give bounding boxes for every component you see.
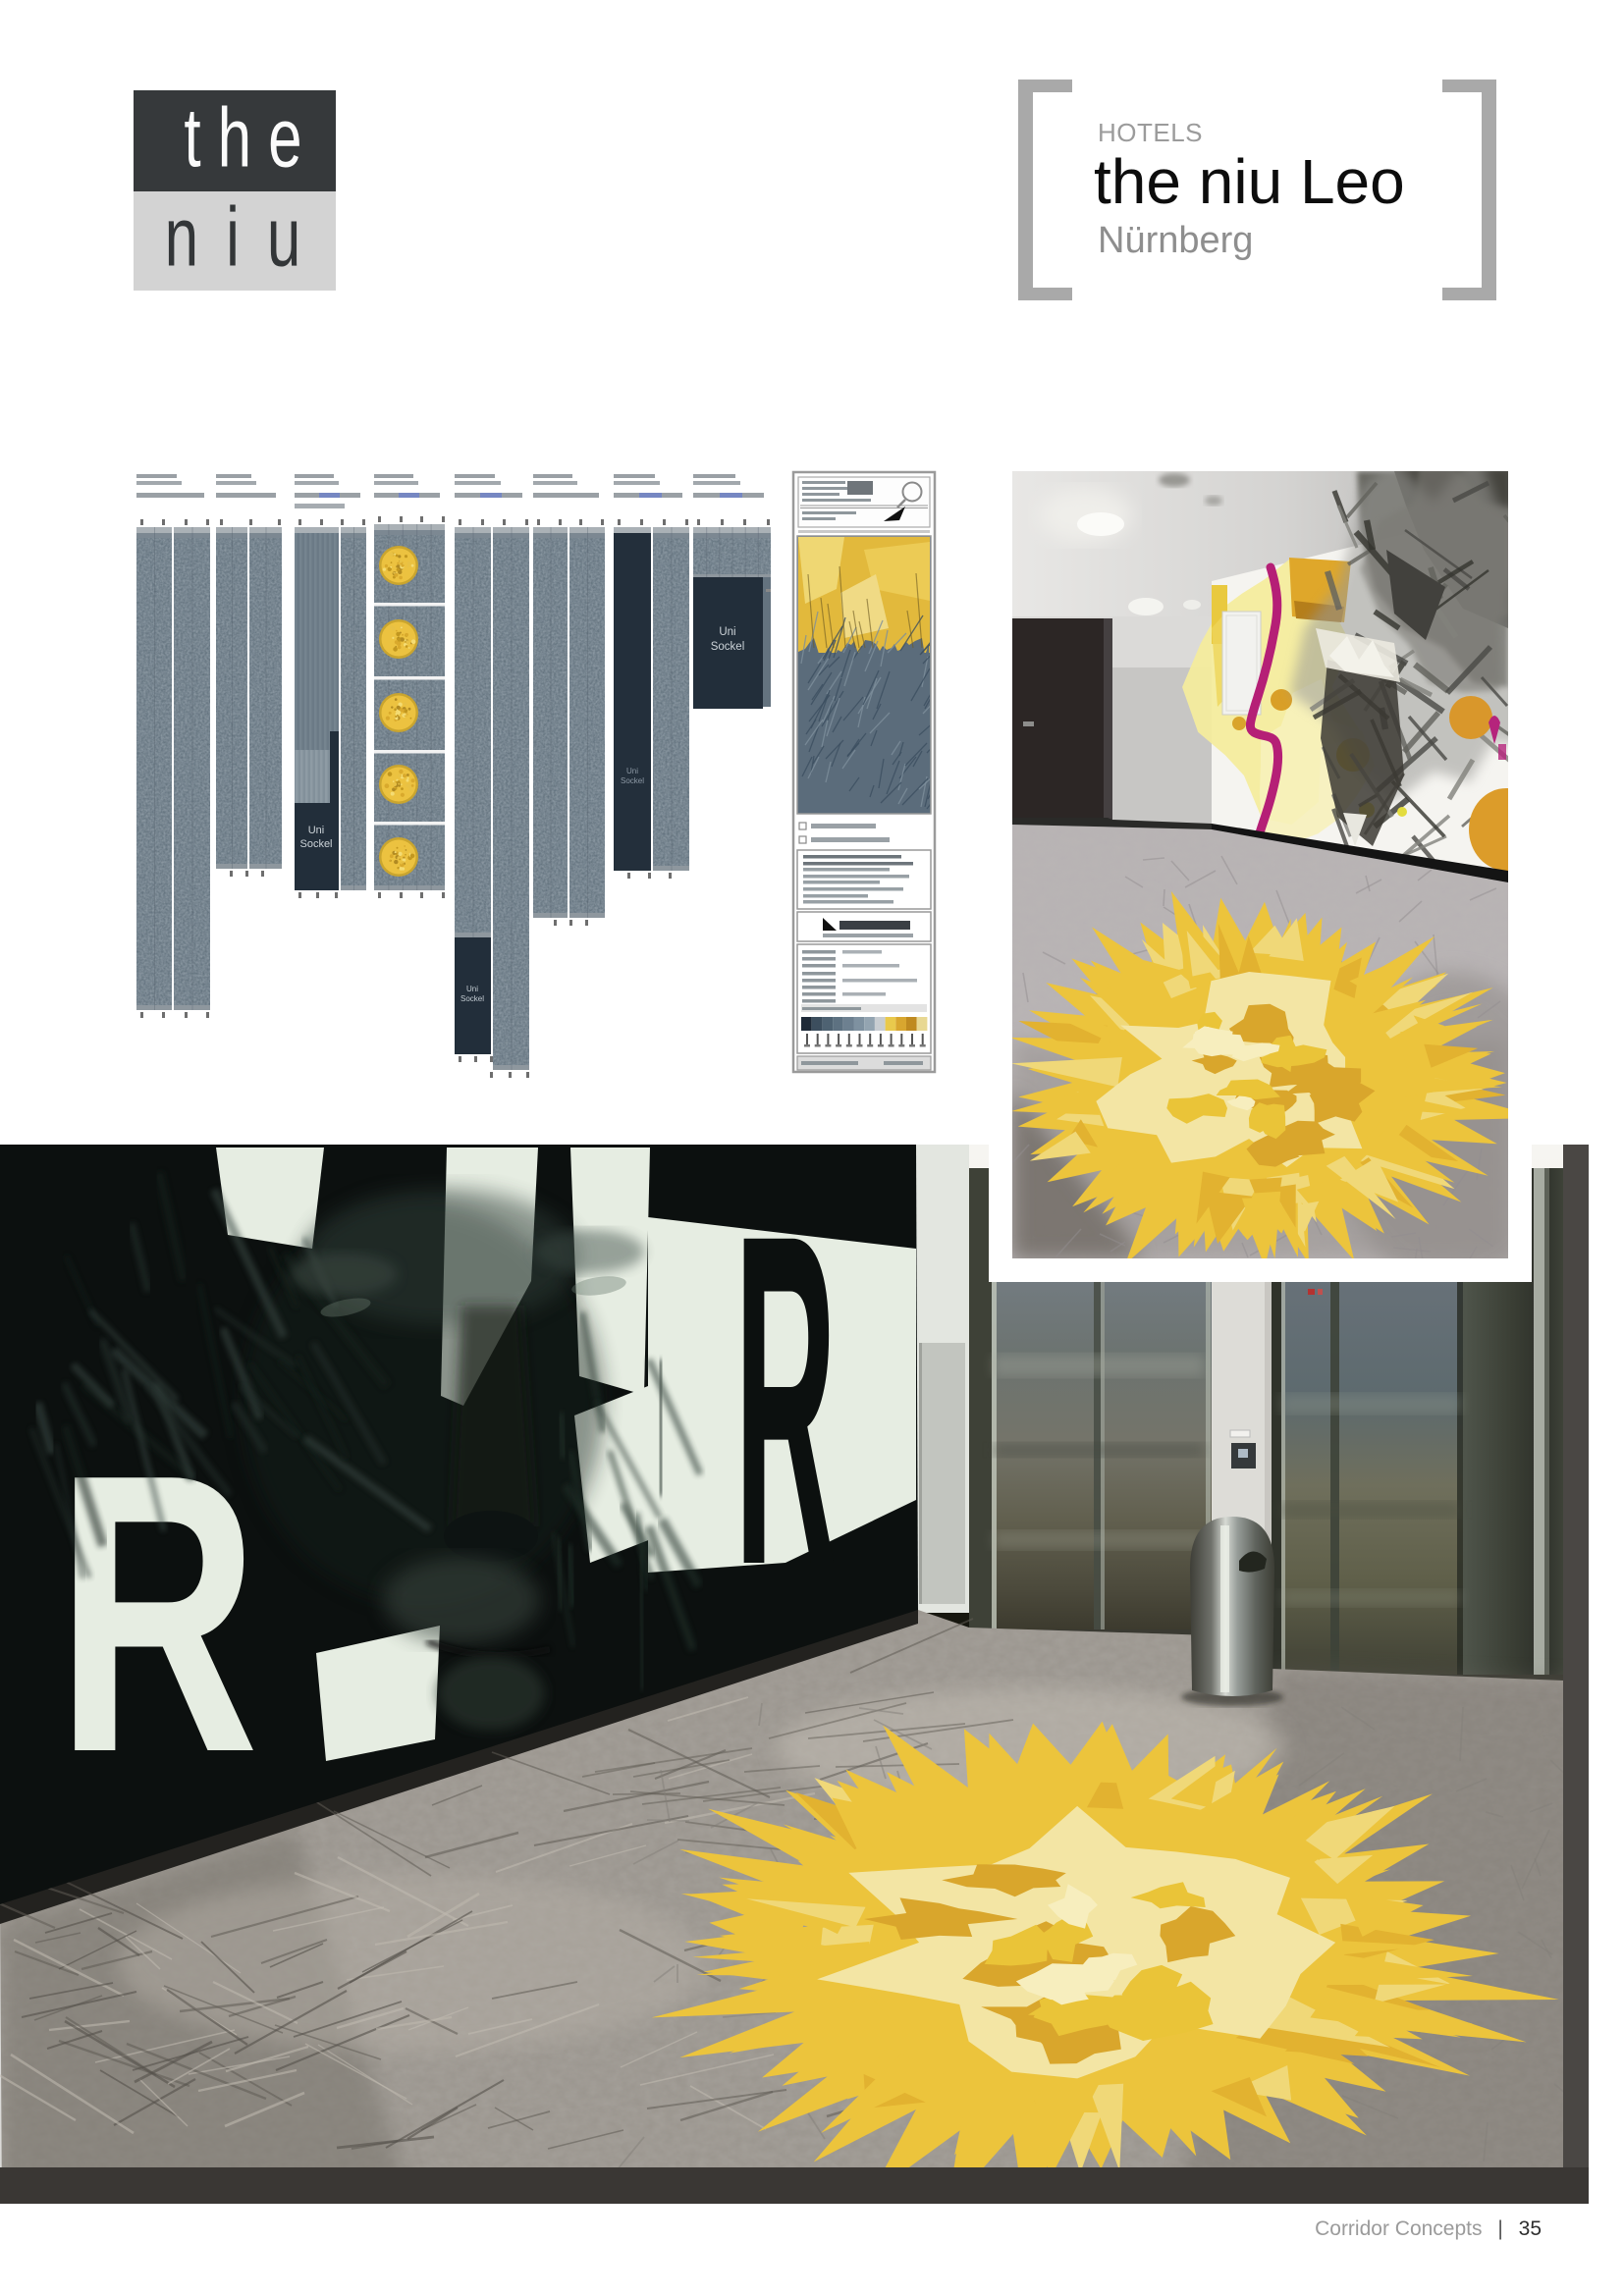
svg-text:Sockel: Sockel [711,641,745,653]
svg-text:Sockel: Sockel [460,994,484,1003]
svg-text:Sockel: Sockel [299,838,332,850]
svg-text:Uni: Uni [626,767,638,775]
svg-text:R: R [734,1138,837,1664]
svg-text:Uni: Uni [466,985,478,993]
svg-text:Sockel: Sockel [621,776,644,785]
svg-text:R: R [56,1392,259,1835]
svg-text:Uni: Uni [308,825,325,836]
svg-text:Uni: Uni [719,626,735,638]
